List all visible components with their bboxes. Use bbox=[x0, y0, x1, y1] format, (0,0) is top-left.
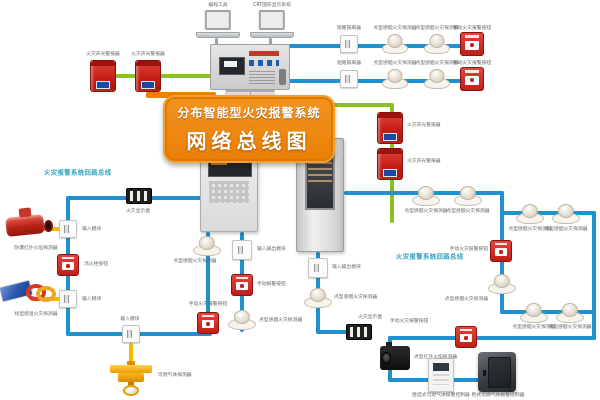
system-title: 分布智能型火灾报警系统 bbox=[177, 104, 320, 121]
manual-call-point bbox=[231, 274, 253, 296]
manual-call-point-label: 手动报警按钮 bbox=[257, 281, 305, 287]
input-module-label: 输入模块 bbox=[82, 226, 117, 232]
crt-graphic-display-laptop bbox=[250, 10, 294, 38]
wall-gas-alarm-controller-label: 壁挂式可燃气体报警控制器 bbox=[411, 392, 470, 398]
fire-display-panel bbox=[346, 324, 372, 340]
bus-line-green bbox=[330, 103, 392, 107]
crt-graphic-display-laptop-label: CRT图形显示系统 bbox=[240, 2, 304, 8]
short-circuit-isolator-label: 短路隔离器 bbox=[327, 25, 370, 31]
smoke-detector-label: 点型感烟火灾探测器 bbox=[373, 25, 416, 31]
fire-display-panel-label: 火灾显示盘 bbox=[348, 314, 393, 320]
explosion-proof-ir-flame-detector bbox=[2, 206, 54, 240]
manual-call-point bbox=[197, 312, 219, 334]
smoke-detector-label: 点型感烟火灾探测器 bbox=[438, 296, 488, 302]
console-handset bbox=[279, 69, 286, 85]
io-module bbox=[308, 258, 328, 278]
input-module-label: 输入模块 bbox=[82, 296, 117, 302]
io-module-label: 输入输出模块 bbox=[332, 264, 380, 270]
smoke-detector-label: 点型感烟火灾探测器 bbox=[172, 258, 218, 264]
short-circuit-isolator-label: 短路隔离器 bbox=[327, 60, 370, 66]
bus-line-blue bbox=[592, 211, 596, 340]
manual-call-point-label: 手动火灾报警按钮 bbox=[450, 25, 493, 31]
smoke-detector-label: 点型感烟火灾探测器 bbox=[548, 324, 593, 330]
sound-light-alarm-label: 火灾声光警报器 bbox=[407, 158, 458, 164]
fire-display-panel bbox=[126, 188, 152, 204]
console-vent bbox=[249, 71, 275, 84]
ir-flame-detector bbox=[380, 346, 410, 370]
smoke-detector bbox=[382, 69, 408, 89]
manual-call-point-label: 手动火灾报警按钮 bbox=[450, 60, 493, 66]
smoke-detector bbox=[454, 186, 482, 206]
combustible-gas-detector bbox=[108, 360, 154, 396]
smoke-detector bbox=[382, 34, 408, 54]
manual-call-point bbox=[460, 32, 484, 56]
short-circuit-isolator bbox=[340, 35, 358, 53]
smoke-detector bbox=[556, 303, 584, 323]
ir-flame-detector-label: 点型红外火焰探测器 bbox=[414, 354, 472, 360]
bus-line-blue bbox=[388, 336, 596, 340]
manual-call-point-label: 手动火灾报警按钮 bbox=[390, 318, 440, 324]
sound-light-alarm bbox=[377, 112, 403, 144]
programming-laptop bbox=[196, 10, 240, 38]
console-red-strip bbox=[249, 51, 279, 56]
console-indicator-chips bbox=[249, 60, 279, 66]
explosion-proof-ir-flame-detector-label: 防爆红外火焰探测器 bbox=[7, 245, 65, 251]
title-banner: 分布智能型火灾报警系统 网络总线图 bbox=[163, 95, 335, 163]
manual-call-point bbox=[455, 326, 477, 348]
left-loop-bus-label: 火灾报警系统回路总线 bbox=[44, 169, 143, 176]
smoke-detector-label: 点型感烟火灾探测器 bbox=[259, 317, 310, 323]
sound-light-alarm-label: 火灾声光警报器 bbox=[77, 51, 128, 57]
smoke-detector-label: 点型感烟火灾探测器 bbox=[334, 294, 385, 300]
sound-light-alarm bbox=[377, 148, 403, 180]
smoke-detector-label: 点型感烟火灾探测器 bbox=[404, 208, 449, 214]
wall-gas-alarm-controller bbox=[428, 358, 454, 392]
smoke-detector bbox=[193, 236, 221, 256]
smoke-detector-label: 点型感烟火灾探测器 bbox=[446, 208, 491, 214]
sound-light-alarm bbox=[135, 60, 161, 92]
smoke-detector-label: 点型感烟火灾探测器 bbox=[373, 60, 416, 66]
console-screen bbox=[219, 57, 245, 75]
manual-call-point bbox=[460, 67, 484, 91]
network-bus-diagram: 分布智能型火灾报警系统 网络总线图 火灾报警系统回路总线 火灾报警系统回路总线 … bbox=[0, 0, 600, 400]
combustible-gas-detector-label: 可燃气体探测器 bbox=[158, 372, 209, 378]
short-circuit-isolator bbox=[340, 70, 358, 88]
linear-heat-detector bbox=[0, 276, 56, 308]
io-module-label: 输入输出模块 bbox=[257, 246, 305, 252]
smoke-detector bbox=[552, 204, 580, 224]
bus-line-blue bbox=[500, 211, 596, 215]
smoke-detector bbox=[424, 69, 450, 89]
right-loop-bus-label: 火灾报警系统回路总线 bbox=[396, 253, 495, 260]
input-module-label: 输入模块 bbox=[109, 316, 151, 322]
cabinet-gas-alarm-controller-label: 柜式可燃气体报警控制器 bbox=[468, 392, 529, 398]
hydrant-button-label: 消火栓按钮 bbox=[84, 261, 119, 267]
io-module bbox=[232, 240, 252, 260]
console-upper-unit bbox=[210, 44, 290, 90]
fire-display-panel-label: 火灾显示盘 bbox=[117, 208, 159, 214]
smoke-detector bbox=[228, 310, 256, 330]
smoke-detector bbox=[520, 303, 548, 323]
manual-call-point-label: 手动火灾报警按钮 bbox=[186, 301, 231, 307]
diagram-title: 网络总线图 bbox=[187, 125, 312, 154]
sound-light-alarm bbox=[90, 60, 116, 92]
smoke-detector-label: 点型感烟火灾探测器 bbox=[544, 226, 589, 232]
manual-call-point-label: 手动火灾报警按钮 bbox=[440, 246, 488, 252]
sound-light-alarm-label: 火灾声光警报器 bbox=[407, 122, 458, 128]
input-module bbox=[59, 290, 77, 308]
linear-heat-detector-label: 线型感温火灾探测器 bbox=[7, 311, 65, 317]
smoke-detector bbox=[424, 34, 450, 54]
cabinet-gas-alarm-controller bbox=[478, 352, 516, 392]
smoke-detector bbox=[412, 186, 440, 206]
sound-light-alarm-label: 火灾声光警报器 bbox=[122, 51, 173, 57]
input-module bbox=[59, 220, 77, 238]
smoke-detector bbox=[488, 274, 516, 294]
hydrant-button bbox=[57, 254, 79, 276]
smoke-detector bbox=[516, 204, 544, 224]
input-module bbox=[122, 325, 140, 343]
panel-keypad bbox=[209, 181, 248, 203]
smoke-detector bbox=[304, 288, 332, 308]
